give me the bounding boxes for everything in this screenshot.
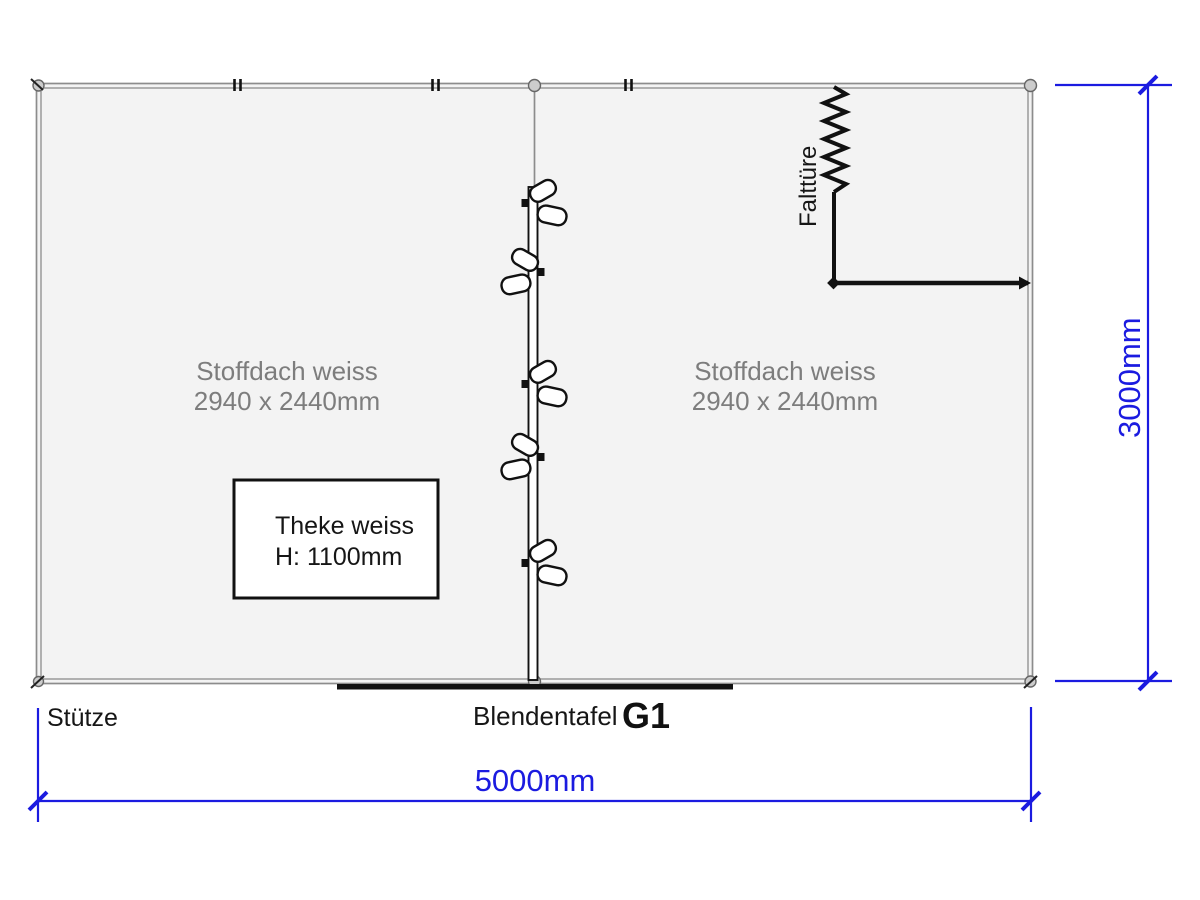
roof-left-size: 2940 x 2440mm [194, 386, 380, 416]
roof-label-right: Stoffdach weiss 2940 x 2440mm [692, 356, 878, 416]
dimension-depth-label: 3000mm [1112, 317, 1147, 438]
roof-left-name: Stoffdach weiss [196, 356, 378, 386]
dimension-width-label: 5000mm [475, 763, 596, 798]
graphic-id-label: G1 [622, 695, 670, 736]
support-label: Stütze [47, 704, 118, 732]
floor-plan-canvas: Falttüre Stoffdach weiss 2940 x 2440mm S… [0, 0, 1200, 900]
folding-door-label: Falttüre [795, 146, 822, 227]
dimension-depth: 3000mm [1055, 76, 1172, 690]
fascia-label: Blendentafel [473, 701, 618, 731]
roof-right-name: Stoffdach weiss [694, 356, 876, 386]
counter-name: Theke weiss [275, 512, 414, 540]
fascia-panel-line [337, 684, 733, 690]
floor-plan-page: Falttüre Stoffdach weiss 2940 x 2440mm S… [0, 0, 1200, 900]
roof-right-size: 2940 x 2440mm [692, 386, 878, 416]
roof-label-left: Stoffdach weiss 2940 x 2440mm [194, 356, 380, 416]
counter-height: H: 1100mm [275, 543, 402, 571]
